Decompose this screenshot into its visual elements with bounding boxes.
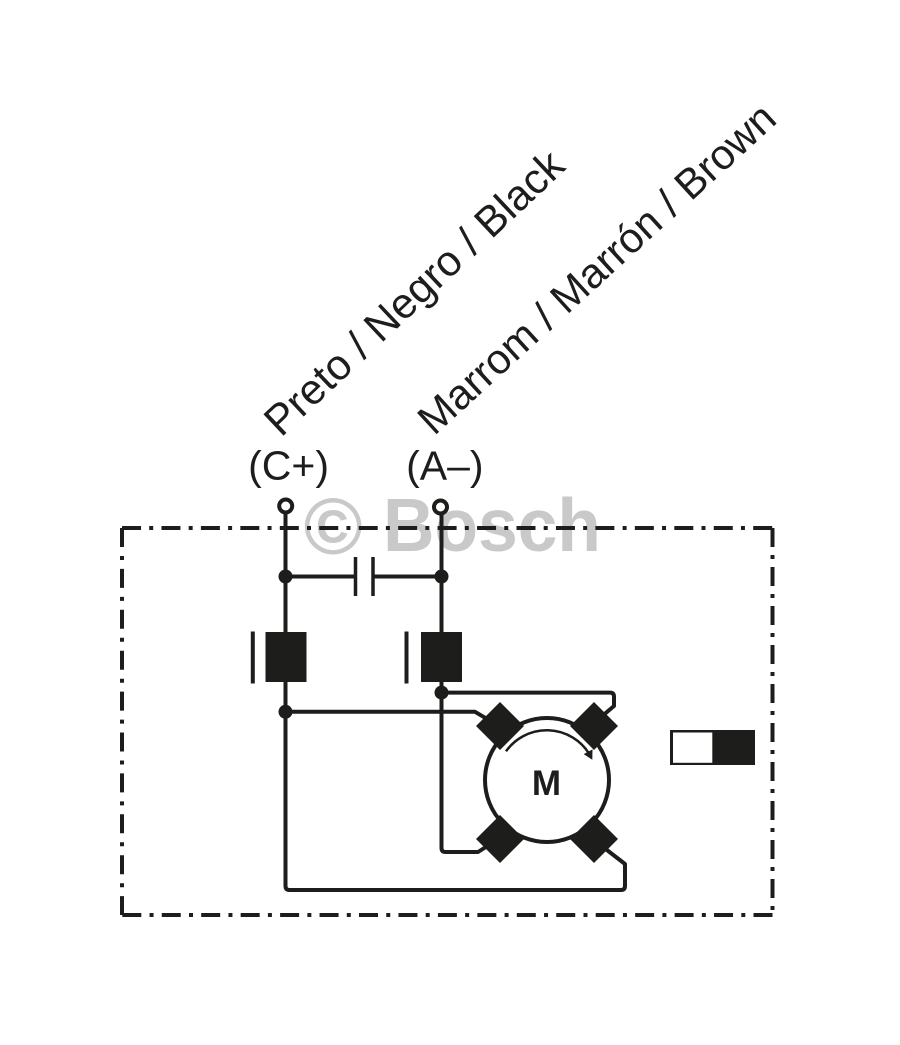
svg-text:Bosch: Bosch [383, 483, 601, 567]
svg-text:(C+): (C+) [248, 443, 329, 489]
svg-text:M: M [532, 764, 561, 803]
svg-text:(A–): (A–) [406, 443, 483, 489]
